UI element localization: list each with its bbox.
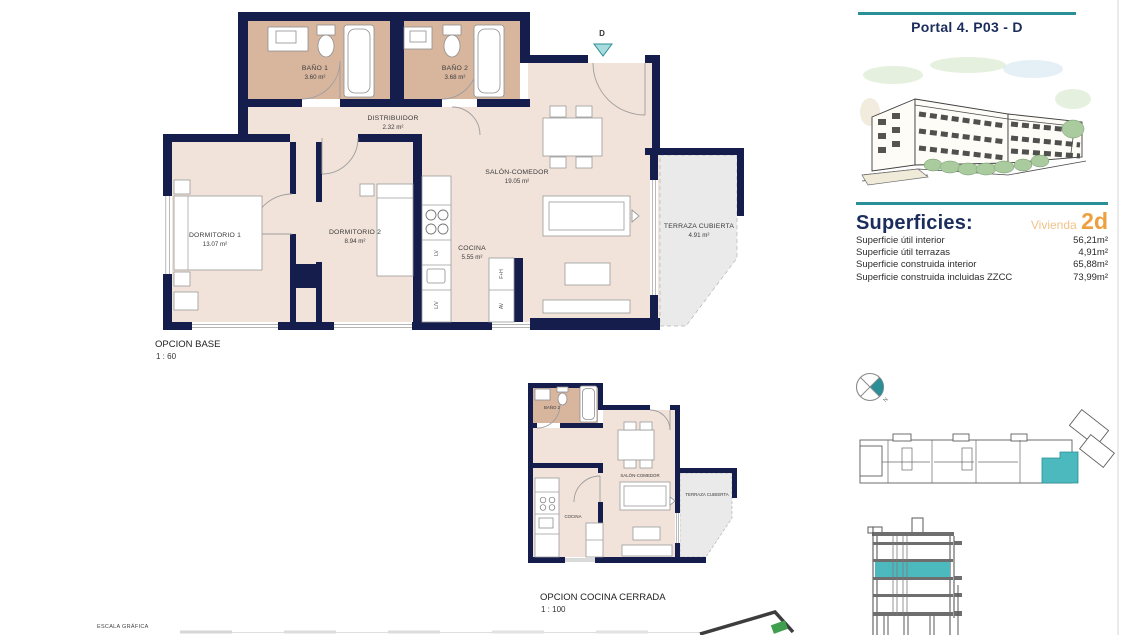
main-floor-plan: LV L/V F+H AV D DORMITOR bbox=[155, 12, 744, 361]
svg-text:5.55 m²: 5.55 m² bbox=[462, 254, 483, 261]
logo-green-mark bbox=[771, 620, 788, 634]
building-sketch-illustration bbox=[860, 57, 1091, 185]
portal-title: Portal 4. P03 - D bbox=[858, 19, 1076, 35]
surface-row: Superficie construida incluidas ZZCC 73,… bbox=[856, 272, 1108, 284]
surface-label: Superficie útil interior bbox=[856, 235, 945, 247]
toilet-icon bbox=[443, 25, 461, 35]
graphic-scale-bar bbox=[180, 631, 700, 634]
main-plan-caption: OPCION BASE bbox=[155, 339, 220, 350]
surface-row: Superficie útil interior 56,21m² bbox=[856, 235, 1108, 247]
surface-label: Superficie construida interior bbox=[856, 259, 976, 271]
secondary-plan-caption: OPCION COCINA CERRADA bbox=[540, 592, 666, 603]
entry-arrow-icon bbox=[594, 44, 612, 56]
highlighted-floor bbox=[875, 562, 950, 577]
room-label-salon: SALÓN-COMEDOR bbox=[620, 473, 659, 478]
surfaces-rule bbox=[856, 202, 1108, 205]
toilet-icon bbox=[317, 25, 335, 35]
svg-text:13.07 m²: 13.07 m² bbox=[203, 241, 227, 248]
surfaces-title: Superficies: bbox=[856, 212, 973, 235]
room-label-dormitorio1: DORMITORIO 1 bbox=[189, 232, 241, 239]
partial-logo bbox=[700, 612, 793, 634]
appliance-label-lv: LV bbox=[434, 249, 440, 255]
surface-value: 56,21m² bbox=[1073, 235, 1108, 247]
room-label-cocina: COCINA bbox=[458, 245, 486, 252]
room-label-dormitorio2: DORMITORIO 2 bbox=[329, 229, 381, 236]
surface-value: 73,99m² bbox=[1073, 272, 1108, 284]
surface-value: 65,88m² bbox=[1073, 259, 1108, 271]
terrace-glass-door bbox=[650, 180, 658, 295]
dining-table-icon bbox=[543, 118, 602, 156]
surface-value: 4,91m² bbox=[1078, 247, 1108, 259]
surface-label: Superficie útil terrazas bbox=[856, 247, 950, 259]
appliance-label-lvd: L/V bbox=[434, 301, 440, 309]
compass-icon: N bbox=[857, 374, 890, 404]
svg-text:2.32 m²: 2.32 m² bbox=[383, 124, 404, 131]
room-label-terraza: TERRAZA CUBIERTA bbox=[664, 223, 734, 230]
svg-text:8.94 m²: 8.94 m² bbox=[345, 238, 366, 245]
floor-salon-upper bbox=[528, 63, 660, 107]
surface-row: Superficie útil terrazas 4,91m² bbox=[856, 247, 1108, 259]
room-label-bano2: BAÑO 2 bbox=[442, 63, 468, 72]
plan-sheet-graphics: LV L/V F+H AV D DORMITOR bbox=[0, 0, 1130, 635]
building-section bbox=[868, 518, 962, 635]
room-label-bano1: BAÑO 1 bbox=[302, 63, 328, 72]
vivienda-badge: Vivienda 2d bbox=[1031, 208, 1108, 235]
svg-text:3.60 m²: 3.60 m² bbox=[305, 74, 326, 81]
svg-text:19.05 m²: 19.05 m² bbox=[505, 178, 529, 185]
main-plan-scale: 1 : 60 bbox=[156, 352, 177, 361]
floor-terraza bbox=[660, 155, 737, 326]
svg-text:4.91 m²: 4.91 m² bbox=[689, 232, 710, 239]
room-label-cocina: COCINA bbox=[564, 514, 581, 519]
entry-marker: D bbox=[594, 29, 612, 56]
header-rule bbox=[858, 12, 1076, 15]
room-label-terraza: TERRAZA CUBIERTA bbox=[685, 492, 728, 497]
escala-grafica-label: ESCALA GRÁFICA bbox=[97, 624, 149, 630]
secondary-floor-plan: BAÑO 2 SALÓN-COMEDOR COCINA TERRAZA CUBI… bbox=[528, 383, 737, 614]
svg-text:3.68 m²: 3.68 m² bbox=[445, 74, 466, 81]
compass-north-label: N bbox=[883, 397, 890, 404]
secondary-plan-scale: 1 : 100 bbox=[541, 605, 566, 614]
portal-header: Portal 4. P03 - D bbox=[858, 12, 1076, 35]
surface-label: Superficie construida incluidas ZZCC bbox=[856, 272, 1012, 284]
kitchen-sink-icon bbox=[427, 269, 445, 283]
sideboard-icon bbox=[543, 300, 630, 313]
room-label-salon: SALÓN-COMEDOR bbox=[485, 167, 548, 176]
surface-row: Superficie construida interior 65,88m² bbox=[856, 259, 1108, 271]
plan-sheet-page: LV L/V F+H AV D DORMITOR bbox=[0, 0, 1130, 635]
site-key-plan bbox=[860, 410, 1114, 483]
appliance-label-fh: F+H bbox=[499, 269, 505, 279]
vivienda-code: 2d bbox=[1081, 208, 1108, 234]
appliance-label-av: AV bbox=[499, 302, 505, 309]
coffee-table-icon bbox=[565, 263, 610, 285]
vivienda-label: Vivienda bbox=[1031, 218, 1077, 232]
room-label-distribuidor: DISTRIBUIDOR bbox=[367, 115, 418, 122]
entry-letter: D bbox=[599, 29, 605, 38]
room-label-bano2: BAÑO 2 bbox=[544, 405, 561, 410]
surfaces-panel: Superficies: Vivienda 2d Superficie útil… bbox=[856, 202, 1108, 284]
